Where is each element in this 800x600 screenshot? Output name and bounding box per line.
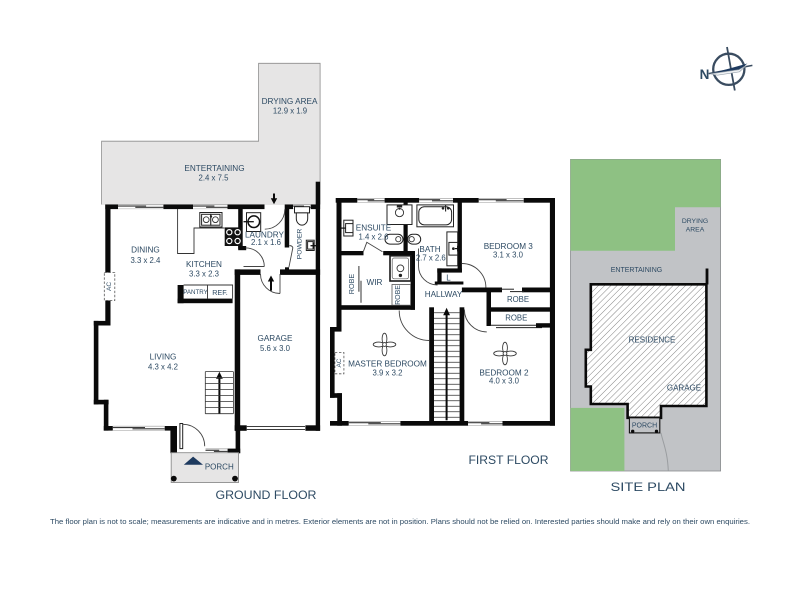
- svg-text:WIR: WIR: [367, 278, 383, 287]
- svg-text:POWDER: POWDER: [296, 229, 303, 260]
- svg-text:GARAGE: GARAGE: [257, 334, 293, 343]
- svg-text:4.0 x 3.0: 4.0 x 3.0: [489, 377, 520, 386]
- svg-text:ENTERTAINING: ENTERTAINING: [611, 267, 662, 274]
- svg-text:REF.: REF.: [212, 288, 228, 297]
- svg-text:3.1 x 3.0: 3.1 x 3.0: [493, 250, 524, 259]
- svg-text:ENSUITE: ENSUITE: [356, 224, 392, 233]
- svg-text:SITE PLAN: SITE PLAN: [611, 480, 686, 494]
- svg-text:3.3 x 2.3: 3.3 x 2.3: [189, 270, 219, 279]
- svg-text:ROBE: ROBE: [347, 274, 356, 295]
- svg-text:PANTRY: PANTRY: [183, 289, 208, 296]
- svg-text:3.3 x 2.4: 3.3 x 2.4: [130, 256, 161, 265]
- svg-text:DRYING: DRYING: [682, 218, 708, 225]
- svg-text:3.9 x 3.2: 3.9 x 3.2: [373, 369, 403, 378]
- svg-text:RESIDENCE: RESIDENCE: [629, 336, 676, 345]
- svg-text:GARAGE: GARAGE: [667, 384, 701, 393]
- svg-text:MASTER BEDROOM: MASTER BEDROOM: [348, 360, 427, 369]
- svg-text:L: L: [446, 273, 451, 282]
- svg-text:2.1 x 1.6: 2.1 x 1.6: [251, 238, 281, 247]
- svg-text:AC: AC: [336, 358, 343, 367]
- svg-text:HALLWAY: HALLWAY: [425, 290, 463, 299]
- svg-text:5.6 x 3.0: 5.6 x 3.0: [260, 344, 291, 353]
- svg-text:N: N: [700, 67, 710, 82]
- svg-text:PORCH: PORCH: [632, 423, 657, 430]
- svg-text:ROBE: ROBE: [505, 314, 527, 323]
- svg-text:DINING: DINING: [131, 246, 160, 255]
- svg-text:2.4 x 7.5: 2.4 x 7.5: [199, 173, 230, 182]
- svg-text:ROBE: ROBE: [395, 285, 402, 305]
- svg-text:2.7 x 2.6: 2.7 x 2.6: [416, 253, 446, 262]
- svg-text:DRYING AREA: DRYING AREA: [262, 97, 318, 106]
- svg-text:FIRST FLOOR: FIRST FLOOR: [469, 453, 549, 467]
- svg-text:ENTERTAINING: ENTERTAINING: [184, 164, 244, 173]
- svg-text:12.9 x 1.9: 12.9 x 1.9: [273, 106, 307, 115]
- svg-text:LIVING: LIVING: [150, 353, 177, 362]
- svg-text:The floor plan is not to scale: The floor plan is not to scale; measurem…: [50, 517, 750, 526]
- svg-text:ROBE: ROBE: [507, 295, 529, 304]
- svg-text:KITCHEN: KITCHEN: [186, 260, 222, 269]
- svg-text:4.3 x 4.2: 4.3 x 4.2: [148, 362, 178, 371]
- svg-text:AREA: AREA: [686, 227, 705, 234]
- svg-text:1.4 x 2.6: 1.4 x 2.6: [359, 232, 389, 241]
- svg-text:GROUND FLOOR: GROUND FLOOR: [216, 488, 317, 502]
- svg-text:AC: AC: [106, 282, 113, 291]
- svg-text:PORCH: PORCH: [205, 463, 234, 472]
